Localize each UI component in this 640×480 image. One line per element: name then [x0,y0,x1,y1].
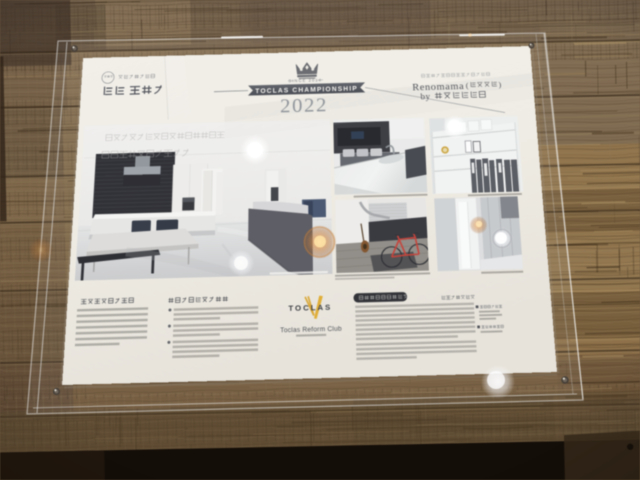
svg-text:TOCLAS: TOCLAS [288,304,332,313]
